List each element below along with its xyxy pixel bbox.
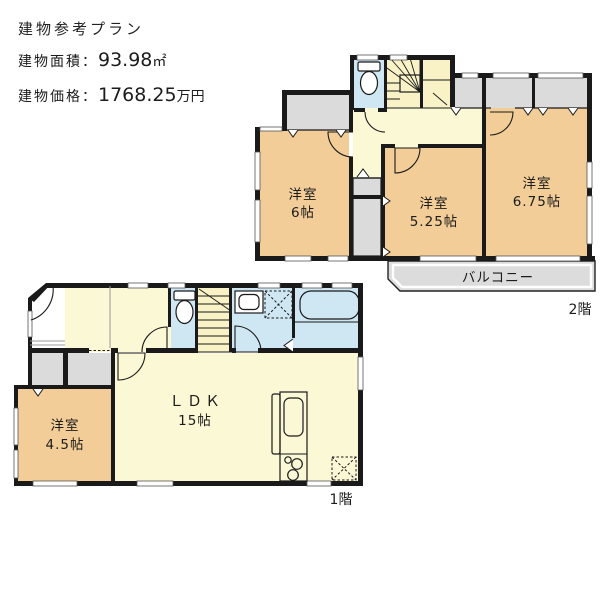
- bathroom: [295, 288, 363, 352]
- closet-room6: [287, 95, 349, 130]
- window: [285, 256, 311, 261]
- floor2-label: 2階: [569, 302, 592, 318]
- room675-name: 洋室: [523, 175, 552, 192]
- closet-45-a: [32, 353, 63, 385]
- window: [302, 283, 322, 288]
- area-label: 建物面積: [18, 54, 82, 70]
- window: [538, 73, 583, 78]
- window: [14, 450, 18, 478]
- toilet-icon-1f: [174, 291, 195, 324]
- floor1-plan: 洋室 4.5帖 ＬＤＫ 15帖 1階: [8, 278, 373, 518]
- window: [137, 481, 173, 486]
- window: [260, 127, 282, 131]
- room525-name: 洋室: [420, 195, 449, 212]
- room525-size: 5.25帖: [410, 214, 459, 230]
- area-unit: ㎡: [152, 54, 166, 70]
- balcony-label: バルコニー: [462, 270, 534, 286]
- window: [28, 311, 32, 337]
- price-unit: 万円: [177, 89, 205, 105]
- floor1-label: 1階: [330, 492, 353, 508]
- area-value: 93.98: [98, 49, 152, 71]
- window: [255, 152, 260, 190]
- window: [168, 283, 185, 288]
- room-western-45: [18, 389, 111, 481]
- window: [33, 481, 77, 486]
- window: [14, 408, 18, 445]
- building-price-row: 建物価格：1768.25万円: [18, 81, 205, 110]
- room45-name: 洋室: [51, 417, 80, 434]
- closet-45-b: [68, 353, 111, 385]
- room675-size: 6.75帖: [513, 194, 562, 210]
- washbasin-icon: [235, 291, 263, 313]
- entrance-hall: [65, 285, 171, 352]
- plan-title: 建物参考プラン: [18, 18, 205, 41]
- room45-size: 4.5帖: [46, 437, 85, 453]
- window: [496, 256, 580, 261]
- price-label: 建物価格: [18, 89, 82, 105]
- window: [255, 200, 260, 242]
- window: [587, 196, 592, 244]
- window: [358, 357, 363, 390]
- window: [332, 283, 352, 288]
- room6-name: 洋室: [289, 186, 318, 203]
- closet-strip: [353, 178, 381, 256]
- window: [420, 256, 476, 261]
- window: [258, 283, 280, 288]
- ldk-room: [115, 353, 360, 481]
- ldk-size: 15帖: [178, 413, 212, 429]
- window: [587, 162, 592, 188]
- window: [128, 283, 148, 288]
- closet-675-a: [486, 78, 532, 108]
- window: [462, 73, 478, 78]
- price-value: 1768.25: [98, 84, 177, 106]
- window: [493, 73, 529, 78]
- plan-header: 建物参考プラン 建物面積：93.98㎡ 建物価格：1768.25万円: [18, 18, 205, 110]
- ldk-name: ＬＤＫ: [169, 392, 223, 410]
- building-area-row: 建物面積：93.98㎡: [18, 46, 205, 75]
- closet-hall-2f: [455, 78, 482, 108]
- closet-675-b: [535, 78, 587, 108]
- window: [307, 481, 331, 486]
- room6-size: 6帖: [291, 205, 315, 221]
- window: [357, 55, 378, 60]
- floor-plan-page: 建物参考プラン 建物面積：93.98㎡ 建物価格：1768.25万円: [0, 0, 600, 600]
- window: [328, 256, 348, 261]
- window: [390, 55, 407, 60]
